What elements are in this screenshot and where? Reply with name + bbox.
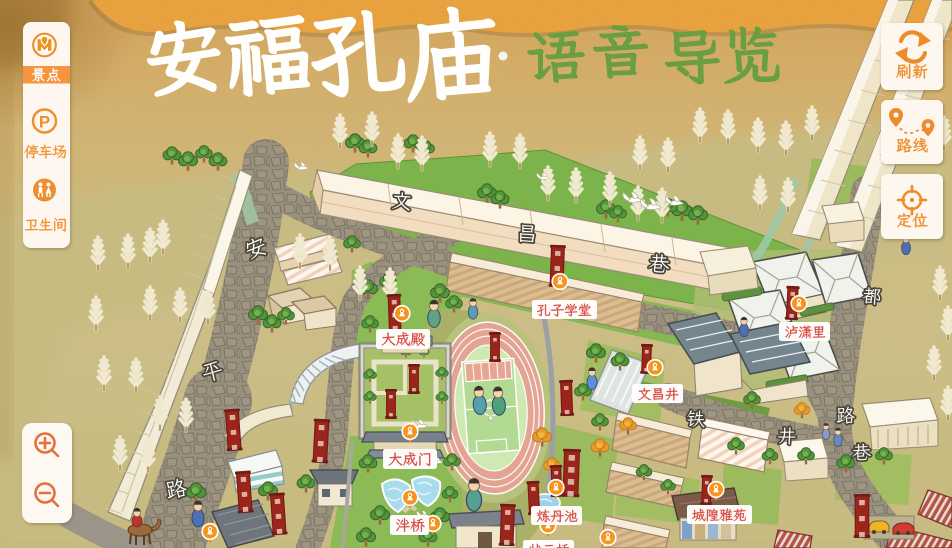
svg-text:P: P — [39, 113, 50, 132]
